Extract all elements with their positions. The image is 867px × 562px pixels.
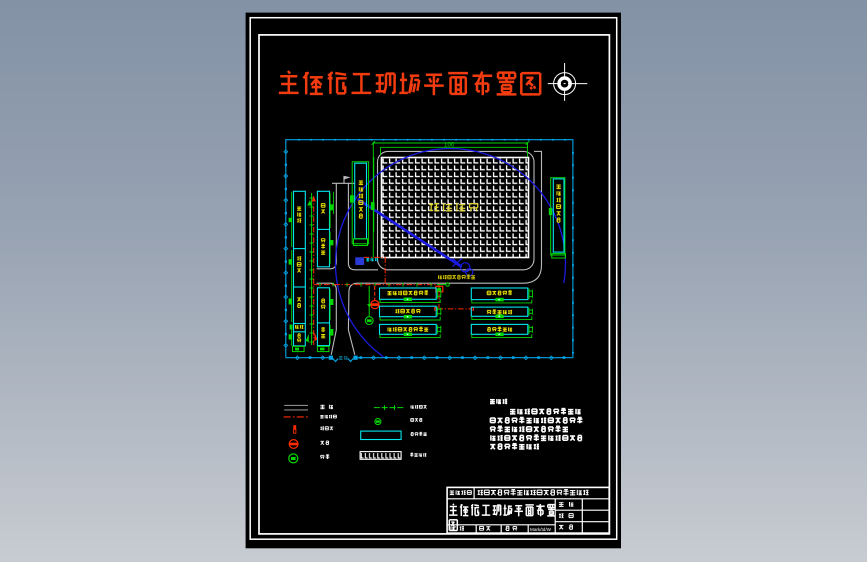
svg-text:Mark/td/W: Mark/td/W	[530, 527, 552, 532]
svg-text:100: 100	[444, 142, 455, 149]
